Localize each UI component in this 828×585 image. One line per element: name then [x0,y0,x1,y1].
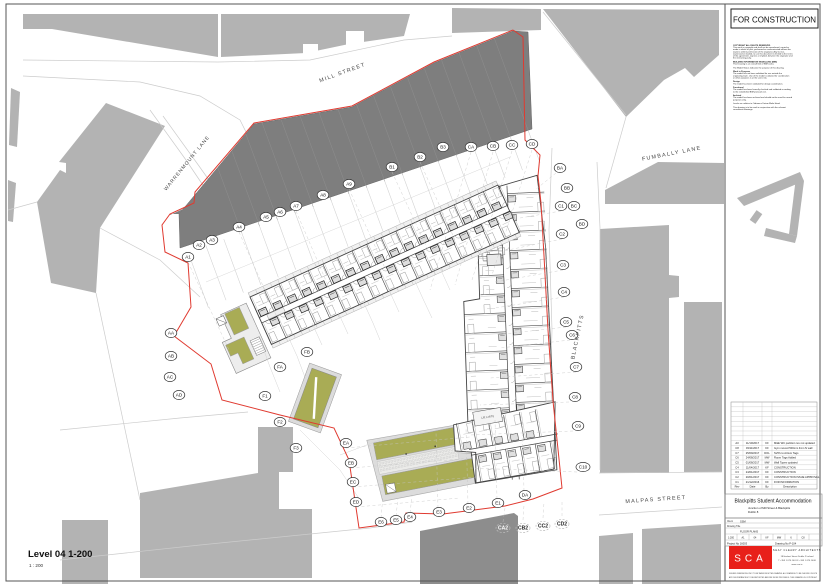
svg-text:The Model Status indicates the: The Model Status indicates the purpose o… [733,66,785,69]
svg-text:SSM: SSM [740,519,746,523]
svg-text:This Drawing is an overall lim: This Drawing is an overall limit of BIM … [733,63,775,66]
svg-text:AB: AB [168,354,174,359]
svg-text:F2: F2 [277,420,283,425]
svg-text:KF: KF [765,446,769,450]
svg-text:purposes only.: purposes only. [733,98,747,101]
svg-text:to the established BIM protoco: to the established BIM protocols set. [733,90,767,93]
svg-text:E2: E2 [466,506,472,511]
svg-text:FLOOR PLANS: FLOOR PLANS [740,530,758,534]
svg-text:KF: KF [765,475,769,479]
svg-text:BC: BC [571,204,578,209]
svg-text:T +353 1 676 1401 F +353 1 67: T +353 1 676 1401 F +353 1 676 1408 [778,560,816,562]
svg-text:Description: Description [783,485,797,489]
svg-text:C1: C1 [558,204,564,209]
svg-text:KF: KF [765,441,769,445]
svg-text:BD: BD [579,222,586,227]
svg-text:E6: E6 [378,520,384,525]
svg-text:Project No 16003: Project No 16003 [727,542,748,546]
svg-text:KF: KF [765,480,769,484]
svg-text:BA: BA [557,166,564,171]
svg-text:SCA: SCA [734,554,767,565]
svg-text:EA: EA [343,441,350,446]
svg-text:24/01/2017: 24/01/2017 [746,470,760,474]
svg-text:Level 04 1-200: Level 04 1-200 [28,549,92,560]
svg-text:C4: C4 [561,290,567,295]
svg-text:EC: EC [350,480,357,485]
svg-text:CA2: CA2 [498,526,508,532]
svg-text:Date: Date [750,485,756,489]
svg-text:the instructing party.: the instructing party. [733,57,752,60]
svg-text:Wall Types updated: Wall Types updated [774,461,798,465]
svg-text:AC: AC [167,375,174,380]
svg-text:FIGURED DIMENSIONS ONLY TO BE: FIGURED DIMENSIONS ONLY TO BE TAKEN FROM… [729,572,817,575]
svg-text:18 Herbert Street Dublin 2 Ire: 18 Herbert Street Dublin 2 Ireland [781,555,814,558]
svg-text:25/09/2017: 25/09/2017 [746,451,760,455]
svg-text:C3: C3 [560,263,566,268]
svg-text:1:200: 1:200 [728,537,735,540]
svg-text:MW: MW [765,461,770,465]
svg-text:B1: B1 [389,165,395,170]
svg-text:C4: C4 [735,465,739,469]
svg-text:11/04/2017: 11/04/2017 [746,465,760,469]
svg-text:AD: AD [176,393,183,398]
svg-text:KF: KF [765,470,769,474]
svg-text:MW: MW [777,537,782,540]
svg-text:Blackpitts Student Accommodati: Blackpitts Student Accommodation [735,499,812,505]
svg-text:F1: F1 [262,394,268,399]
svg-text:03/11/2017: 03/11/2017 [746,446,760,450]
svg-text:CD: CD [529,142,536,147]
svg-text:Dublin 8: Dublin 8 [748,510,759,514]
svg-text:20/01/2017: 20/01/2017 [746,475,760,479]
svg-text:01/08/2017: 01/08/2017 [746,461,760,465]
svg-text:A5: A5 [263,215,269,220]
svg-text:M&E WC partition rev not updat: M&E WC partition rev not updated [774,441,815,445]
svg-text:AA: AA [168,331,175,336]
svg-text:A8: A8 [320,193,326,198]
svg-text:ANY DISCREPANCIES TO BE REPORT: ANY DISCREPANCIES TO BE REPORTED BEFORE … [729,576,818,579]
svg-text:A4: A4 [236,225,242,230]
svg-text:A3: A3 [209,238,215,243]
svg-text:Room Tags Added: Room Tags Added [774,456,796,460]
svg-text:Gym moved 500mm from N wall: Gym moved 500mm from N wall [774,446,813,450]
svg-text:FA: FA [277,365,284,370]
svg-text:EB: EB [348,461,354,466]
svg-text:consultants drawings.: consultants drawings. [733,108,753,111]
svg-text:Drawing No P-104: Drawing No P-104 [775,542,797,546]
svg-text:C6: C6 [735,456,739,460]
svg-text:DA: DA [522,493,529,498]
svg-text:C9: C9 [575,424,581,429]
svg-text:C3: C3 [735,470,739,474]
svg-text:C1: C1 [735,480,739,484]
svg-text:E4: E4 [407,515,413,520]
svg-text:A1: A1 [185,255,191,260]
svg-text:C2: C2 [735,475,739,479]
svg-text:www.sca.ie: www.sca.ie [792,564,804,566]
svg-text:CC: CC [509,143,516,148]
svg-text:A2: A2 [196,243,202,248]
svg-text:C7: C7 [735,451,739,455]
svg-text:FOR INFORMATION: FOR INFORMATION [774,480,799,484]
svg-text:CONSTRUCTION ISSUE APPROVAL: CONSTRUCTION ISSUE APPROVAL [774,475,820,479]
svg-text:C2: C2 [559,232,565,237]
svg-text:CB2: CB2 [518,526,528,532]
svg-text:24/08/2017: 24/08/2017 [746,456,760,460]
svg-text:KF: KF [765,537,769,540]
svg-text:C5: C5 [563,320,569,325]
svg-text:SVPs to Atrium Tags: SVPs to Atrium Tags [774,451,799,455]
svg-text:C10: C10 [579,465,588,470]
svg-text:C8: C8 [572,395,578,400]
svg-text:MW: MW [765,456,770,460]
svg-text:B2: B2 [417,155,423,160]
svg-text:SHAY CLEARY ARCHITECTS: SHAY CLEARY ARCHITECTS [773,548,821,552]
svg-text:Rev: Rev [735,485,740,489]
svg-text:A9: A9 [346,182,352,187]
svg-text:BB: BB [564,186,570,191]
svg-text:B3: B3 [440,145,446,150]
svg-text:CONSTRUCTION: CONSTRUCTION [774,470,796,474]
svg-text:or other purposes is at the us: or other purposes is at the users risk. [733,76,768,79]
svg-text:CB: CB [490,144,496,149]
svg-text:DOL: DOL [764,451,770,455]
svg-text:Levels are relative to Ordnanc: Levels are relative to Ordnance Datum Ma… [733,102,781,105]
svg-text:21/12/2016: 21/12/2016 [746,480,760,484]
svg-text:KF: KF [765,465,769,469]
svg-text:C8: C8 [735,446,739,450]
svg-text:CD2: CD2 [557,522,567,528]
svg-text:The model has been validated f: The model has been validated for design … [733,82,783,85]
svg-text:C5: C5 [735,461,739,465]
svg-text:A6: A6 [277,210,283,215]
svg-text:CC2: CC2 [538,524,548,530]
svg-text:F3: F3 [293,446,299,451]
svg-text:A3: A3 [735,441,739,445]
svg-text:E1: E1 [495,501,501,506]
svg-text:1 : 200: 1 : 200 [29,563,43,568]
svg-text:E3: E3 [436,510,442,515]
svg-text:11/10/2017: 11/10/2017 [746,441,760,445]
svg-text:A7: A7 [293,204,299,209]
svg-text:E5: E5 [393,518,399,523]
svg-text:CA: CA [468,145,475,150]
svg-text:Drawing Title: Drawing Title [727,525,741,528]
svg-text:CONSTRUCTION: CONSTRUCTION [774,465,796,469]
svg-text:C7: C7 [573,365,579,370]
svg-text:Client: Client [727,520,733,523]
svg-text:ED: ED [353,500,360,505]
svg-text:FOR CONSTRUCTION: FOR CONSTRUCTION [733,15,816,25]
svg-text:FB: FB [304,350,310,355]
